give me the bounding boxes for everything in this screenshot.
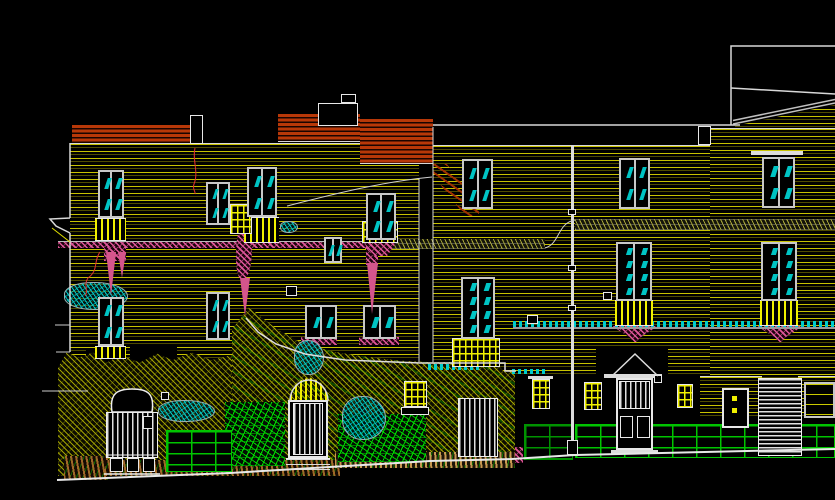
window-15-glazing-pane <box>484 311 491 319</box>
window-6-glazing-pane <box>640 189 648 200</box>
window-4 <box>366 193 396 240</box>
brick-parapet-left <box>72 125 190 144</box>
chimney-cap <box>341 94 356 103</box>
cad-drawing-viewport[interactable] <box>0 0 835 500</box>
gate-panel-2 <box>127 458 139 472</box>
door4-threshold <box>611 450 658 454</box>
window-12-glazing-pane <box>336 245 343 256</box>
window-5 <box>462 159 493 209</box>
window-15-glazing-pane <box>484 325 491 333</box>
party-wall-base <box>567 440 578 455</box>
survey-marker-2 <box>603 292 612 300</box>
window-7 <box>762 157 795 208</box>
door3-boarded <box>458 398 498 457</box>
window-3-glazing-pane <box>267 198 275 209</box>
window-5-glazing-pane <box>483 190 491 201</box>
window-14-glazing-pane <box>770 248 777 255</box>
basement-grid-3 <box>404 381 427 407</box>
window-1-glazing-pane <box>115 178 122 189</box>
ivy-squiggle <box>280 221 298 233</box>
window-4-glazing-pane <box>386 201 394 212</box>
window-14-mullion <box>778 244 780 299</box>
parapet-box-left <box>190 115 203 144</box>
window-1 <box>98 170 124 218</box>
window-8 <box>98 297 124 346</box>
door4-panel-2 <box>637 416 650 438</box>
gate-label-plate <box>143 416 153 429</box>
window-14-glazing-pane <box>770 288 777 295</box>
window-13-mullion <box>633 244 635 299</box>
cornice-yellow-line <box>52 228 70 242</box>
window-20 <box>804 382 835 418</box>
window-13-glazing-pane <box>625 248 632 255</box>
roof-triangle-courses <box>735 101 835 128</box>
window-14 <box>761 242 797 301</box>
window-15-mullion <box>477 279 479 337</box>
survey-marker-1 <box>286 286 297 296</box>
lintel-grid-4 <box>528 376 553 379</box>
window-3 <box>247 167 277 217</box>
door4-panel-1 <box>620 416 633 438</box>
party-node-1 <box>568 209 576 215</box>
pink-drip-column <box>104 247 126 261</box>
window-13 <box>616 242 652 301</box>
door5-knob-1 <box>732 396 737 401</box>
window-13-glazing-pane <box>641 288 648 295</box>
window-6-glazing-pane <box>640 167 648 178</box>
parapet-box-right <box>698 126 711 145</box>
door2-bars <box>293 403 323 455</box>
window-8-glazing-pane <box>115 327 122 338</box>
party-recess-strip <box>419 160 433 362</box>
window-3-glazing-pane <box>267 176 275 187</box>
window-15-glazing-pane <box>484 297 491 305</box>
door4-bars <box>619 381 650 409</box>
window-2-glazing-pane <box>222 189 229 199</box>
window-10-mullion <box>320 307 322 337</box>
ivy-bush-2 <box>158 400 215 422</box>
planter-box <box>401 407 429 415</box>
window-6 <box>619 158 650 209</box>
party-node-3 <box>568 305 576 311</box>
window-10-glazing-pane <box>326 317 334 328</box>
basement-grid-1 <box>584 382 602 410</box>
ivy-bush-3 <box>342 396 386 440</box>
window-2 <box>206 182 230 225</box>
door5-knob-2 <box>732 408 737 413</box>
balconette-window1 <box>95 218 126 241</box>
party-wall-line <box>571 145 574 455</box>
window-13-glazing-pane <box>625 288 632 295</box>
basement-grid-4 <box>532 379 550 409</box>
gate-top-panel <box>117 394 148 409</box>
window-9-glazing-pane <box>222 300 229 311</box>
window-11-mullion <box>379 307 381 337</box>
survey-marker-4 <box>161 392 169 400</box>
green-brick-wall-dim <box>524 424 573 460</box>
window-15 <box>461 277 495 339</box>
gate-panel-1 <box>110 458 123 472</box>
party-node-2 <box>568 265 576 271</box>
string-band-khaki-right <box>575 219 835 230</box>
balconette-window14 <box>760 300 798 326</box>
ivy-bush-4 <box>294 340 324 375</box>
window-12-glazing-pane <box>329 245 336 256</box>
window-13-glazing-pane <box>625 261 632 268</box>
window-8-glazing-pane <box>115 305 122 316</box>
door2-steps <box>286 458 330 470</box>
window-10 <box>305 305 337 339</box>
window-13-glazing-pane <box>641 274 648 281</box>
window-13-glazing-pane <box>641 248 648 255</box>
balconette-window13 <box>615 300 653 326</box>
window-7-glazing-pane <box>784 166 792 177</box>
balcony-grid-window15 <box>452 338 500 367</box>
green-brick-wall-gate <box>166 430 232 472</box>
sill-bars-window8 <box>95 346 126 359</box>
basement-grid-2 <box>677 384 693 408</box>
stone-wall-left <box>225 402 285 466</box>
window-14-glazing-pane <box>770 261 777 268</box>
window-15-glazing-pane <box>484 283 491 291</box>
window-7-glazing-pane <box>784 188 792 199</box>
window-1-glazing-pane <box>115 199 122 210</box>
window-11 <box>363 305 396 339</box>
window-2-glazing-pane <box>222 208 229 218</box>
window-9 <box>206 292 230 340</box>
parapet-algae-2 <box>512 369 547 374</box>
window-9-glazing-pane <box>222 321 229 332</box>
chimney <box>318 103 358 126</box>
garage-door <box>758 378 802 456</box>
ground-brown-corner <box>64 456 108 480</box>
window-4-glazing-pane <box>386 221 394 232</box>
window-14-glazing-pane <box>786 261 793 268</box>
lintel-window7 <box>751 151 803 155</box>
window-14-glazing-pane <box>786 274 793 281</box>
wire-node-box <box>527 315 538 324</box>
survey-marker-3 <box>654 375 662 383</box>
window-13-glazing-pane <box>641 261 648 268</box>
window-12 <box>324 237 342 263</box>
window-11-glazing-pane <box>385 317 393 328</box>
window-14-glazing-pane <box>786 288 793 295</box>
window-14-glazing-pane <box>770 274 777 281</box>
window-14-glazing-pane <box>786 248 793 255</box>
brick-gable <box>360 119 433 164</box>
window-5-glazing-pane <box>483 168 491 179</box>
window-13-glazing-pane <box>625 274 632 281</box>
roof-ridge-line <box>731 88 835 94</box>
gate-panel-3 <box>143 458 155 472</box>
